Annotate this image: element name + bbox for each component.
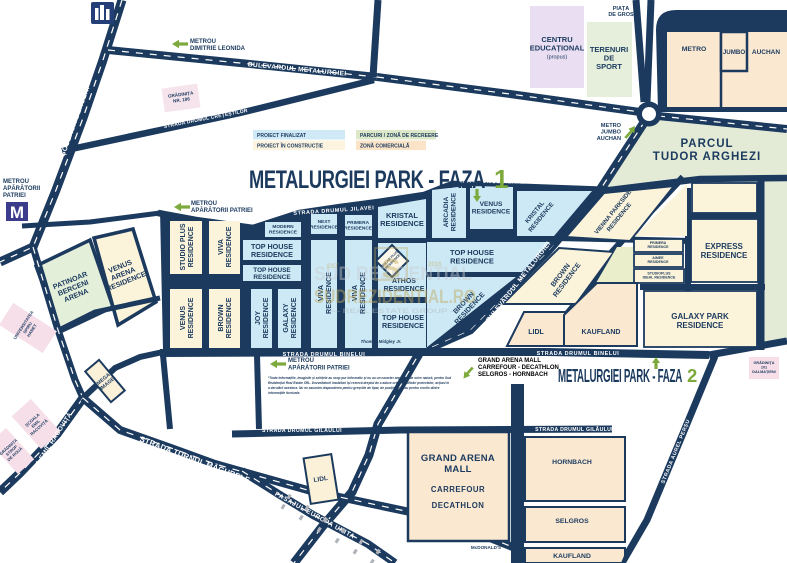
- svg-text:EST: EST: [327, 264, 339, 270]
- svg-text:PROIECT FINALIZAT: PROIECT FINALIZAT: [257, 133, 306, 139]
- svg-text:TOP HOUSERESIDENCE: TOP HOUSERESIDENCE: [382, 313, 424, 330]
- svg-text:STUDIO PLUSRESIDENCE: STUDIO PLUSRESIDENCE: [180, 223, 195, 270]
- svg-text:METROU: METROU: [190, 39, 216, 45]
- svg-text:GALAXY PARKRESIDENCE: GALAXY PARKRESIDENCE: [671, 312, 729, 330]
- svg-text:TOP HOUSERESIDENCE: TOP HOUSERESIDENCE: [253, 267, 291, 281]
- svg-text:PRIMERARESIDENCE: PRIMERARESIDENCE: [344, 220, 373, 232]
- svg-text:Rezidențial Real Estate SRL. D: Rezidențial Real Estate SRL. Dezvoltator…: [268, 381, 449, 385]
- svg-text:ZONĂ COMERCIALĂ: ZONĂ COMERCIALĂ: [360, 143, 410, 150]
- svg-text:METROU: METROU: [288, 358, 314, 364]
- svg-text:2016: 2016: [428, 262, 442, 268]
- svg-text:1: 1: [494, 164, 508, 194]
- svg-text:METALURGIEI PARK - FAZA: METALURGIEI PARK - FAZA: [249, 166, 485, 194]
- svg-text:2: 2: [687, 365, 697, 386]
- svg-text:TOP HOUSERESIDENCE: TOP HOUSERESIDENCE: [251, 242, 293, 259]
- svg-text:McDONALD'S: McDONALD'S: [471, 545, 501, 550]
- svg-text:informațiile furnizate.: informațiile furnizate.: [268, 391, 300, 395]
- svg-text:EXPRESSRESIDENCE: EXPRESSRESIDENCE: [701, 242, 748, 260]
- svg-text:LIDL: LIDL: [528, 329, 544, 336]
- svg-text:*Toate informațiile, imaginile: *Toate informațiile, imaginile și schițe…: [268, 376, 451, 380]
- svg-text:METROU: METROU: [191, 201, 217, 207]
- svg-text:STRADA DRUMUL GILĂULUI: STRADA DRUMUL GILĂULUI: [535, 426, 613, 433]
- svg-text:SUDREZIDENTIAL.RO: SUDREZIDENTIAL.RO: [314, 287, 476, 308]
- svg-text:DECATHLON: DECATHLON: [432, 501, 485, 510]
- svg-text:TOP HOUSERESIDENCE: TOP HOUSERESIDENCE: [450, 248, 494, 266]
- svg-text:PRIMERARESIDENCE: PRIMERARESIDENCE: [648, 241, 670, 249]
- svg-text:STRADA DRUMUL GILĂULUI: STRADA DRUMUL GILĂULUI: [262, 427, 342, 434]
- svg-text:PROIECT ÎN CONSTRUCȚIE: PROIECT ÎN CONSTRUCȚIE: [257, 142, 324, 150]
- svg-text:DIMITRIE LEONIDA: DIMITRIE LEONIDA: [190, 46, 246, 52]
- svg-text:AUCHAN: AUCHAN: [752, 49, 780, 56]
- svg-text:a derulării acestora. Nu ne as: a derulării acestora. Nu ne asumăm răspu…: [268, 386, 440, 390]
- svg-text:STRADA DRUMUL BINELUI: STRADA DRUMUL BINELUI: [537, 351, 620, 357]
- svg-text:Thomas Midgley Jr.: Thomas Midgley Jr.: [361, 339, 402, 344]
- svg-text:APĂRĂTORII PATRIEI: APĂRĂTORII PATRIEI: [288, 365, 350, 372]
- svg-text:APĂRĂTORII PATRIEI: APĂRĂTORII PATRIEI: [191, 207, 253, 214]
- svg-text:KRISTALRESIDENCE: KRISTALRESIDENCE: [380, 211, 424, 228]
- svg-text:METRO: METRO: [682, 46, 707, 53]
- svg-text:KAUFLAND: KAUFLAND: [582, 329, 621, 336]
- svg-text:SELGROS: SELGROS: [555, 518, 589, 525]
- svg-text:METALURGIEI PARK - FAZA: METALURGIEI PARK - FAZA: [558, 365, 682, 386]
- svg-text:METROJUMBOAUCHAN: METROJUMBOAUCHAN: [597, 123, 622, 142]
- svg-text:MODERNRESIDENCE: MODERNRESIDENCE: [269, 224, 298, 236]
- svg-text:— REAL ESTATE GROUP —: — REAL ESTATE GROUP —: [330, 308, 461, 315]
- svg-text:M: M: [10, 203, 24, 222]
- svg-text:HORNBACH: HORNBACH: [552, 459, 592, 466]
- svg-text:GALAXYRESIDENCE: GALAXYRESIDENCE: [283, 297, 298, 338]
- svg-text:ARCADIARESIDENCE: ARCADIARESIDENCE: [443, 192, 458, 231]
- svg-text:CARREFOUR: CARREFOUR: [431, 485, 485, 494]
- svg-text:PARCURI / ZONĂ DE RECREERE: PARCURI / ZONĂ DE RECREERE: [360, 132, 439, 139]
- svg-text:S: S: [382, 253, 401, 284]
- svg-text:JUMBO: JUMBO: [723, 49, 746, 56]
- svg-text:KAUFLAND: KAUFLAND: [553, 553, 591, 560]
